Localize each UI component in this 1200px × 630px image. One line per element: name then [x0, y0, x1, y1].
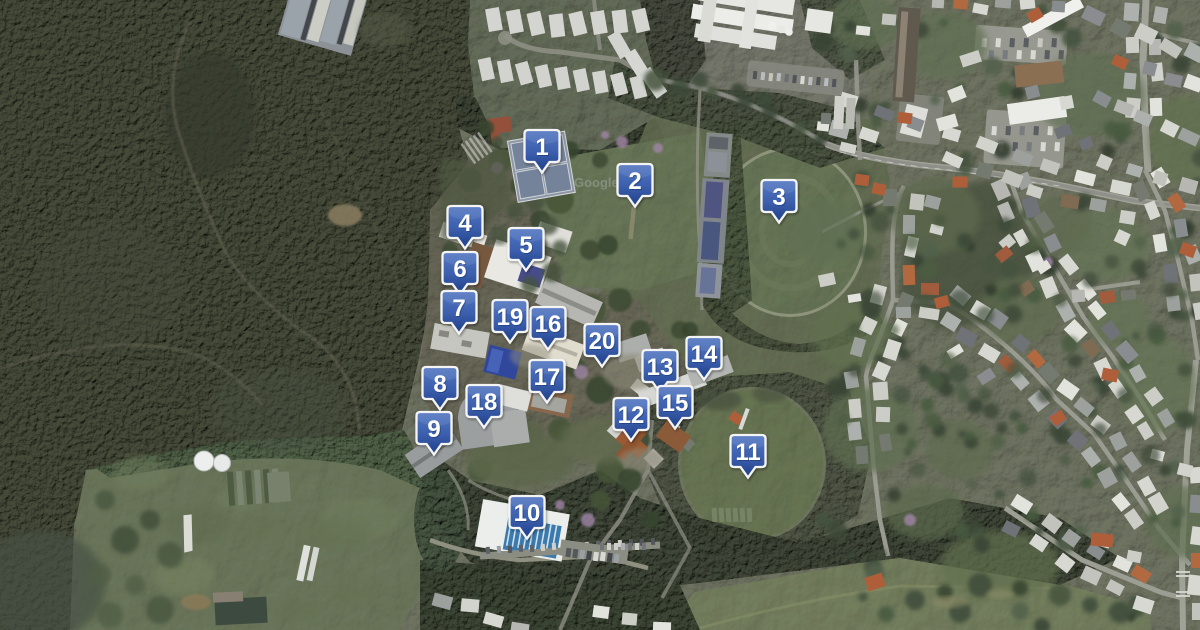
svg-text:12: 12	[618, 402, 645, 429]
svg-text:Google: Google	[574, 175, 619, 190]
svg-text:8: 8	[433, 371, 446, 398]
svg-text:16: 16	[535, 311, 562, 338]
svg-text:1: 1	[535, 134, 548, 161]
svg-text:2: 2	[628, 168, 641, 195]
svg-text:17: 17	[534, 364, 561, 391]
svg-text:4: 4	[458, 210, 472, 237]
svg-text:19: 19	[497, 304, 524, 331]
svg-text:3: 3	[772, 184, 785, 211]
svg-text:20: 20	[589, 328, 616, 355]
svg-text:14: 14	[691, 341, 718, 368]
svg-text:18: 18	[471, 389, 498, 416]
svg-text:10: 10	[514, 500, 541, 527]
svg-text:9: 9	[427, 416, 440, 443]
svg-text:13: 13	[647, 354, 674, 381]
svg-text:5: 5	[519, 232, 532, 259]
svg-text:11: 11	[735, 439, 760, 466]
svg-text:7: 7	[452, 295, 465, 322]
svg-text:6: 6	[453, 256, 466, 283]
svg-text:15: 15	[662, 390, 689, 417]
